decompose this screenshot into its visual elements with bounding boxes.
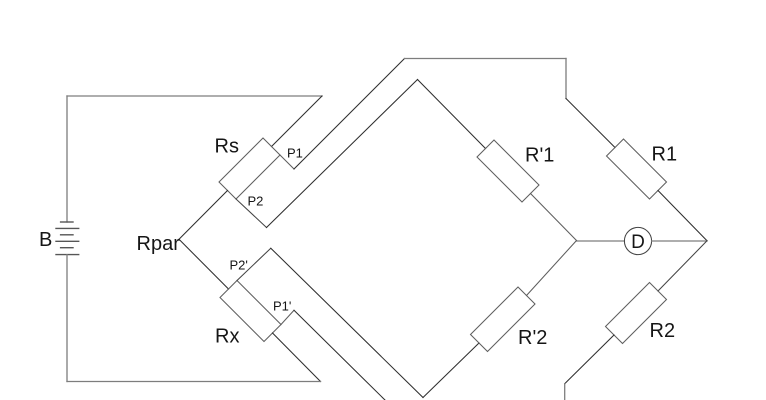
svg-text:D: D	[631, 232, 645, 253]
svg-text:P2: P2	[248, 194, 264, 209]
svg-text:P2': P2'	[230, 258, 248, 273]
svg-text:R1: R1	[652, 144, 678, 166]
svg-text:R'2: R'2	[518, 327, 547, 349]
svg-text:R2: R2	[650, 320, 676, 342]
svg-text:R'1: R'1	[525, 145, 554, 167]
svg-text:Rs: Rs	[215, 136, 239, 158]
svg-text:B: B	[39, 229, 52, 251]
svg-text:Rpar: Rpar	[137, 233, 181, 255]
svg-text:P1': P1'	[273, 299, 291, 314]
svg-text:P1: P1	[287, 146, 303, 161]
svg-text:Rx: Rx	[215, 326, 239, 348]
